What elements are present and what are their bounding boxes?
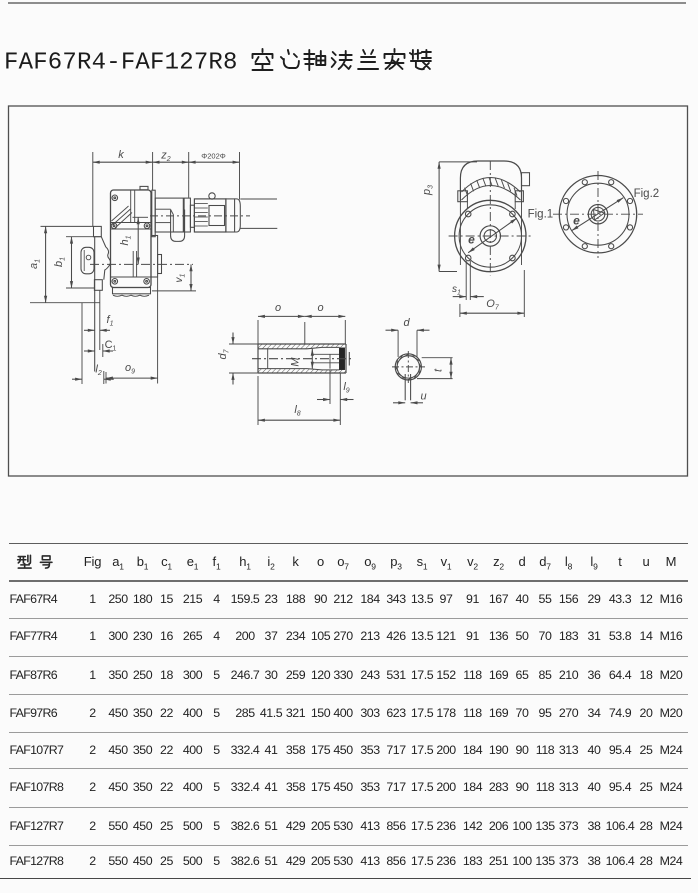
- svg-text:v1: v1: [174, 273, 187, 282]
- svg-text:l9: l9: [343, 381, 349, 395]
- svg-text:o: o: [275, 302, 281, 314]
- svg-text:s1: s1: [452, 284, 461, 297]
- svg-text:o: o: [317, 302, 323, 314]
- svg-text:f1: f1: [107, 314, 114, 328]
- svg-text:M: M: [290, 357, 302, 367]
- svg-text:p3: p3: [421, 185, 435, 196]
- svg-text:Φ202Φ: Φ202Φ: [201, 152, 225, 161]
- svg-text:O7: O7: [486, 298, 500, 312]
- svg-text:o9: o9: [125, 362, 135, 376]
- svg-text:k: k: [118, 149, 124, 161]
- svg-text:C1: C1: [105, 339, 117, 353]
- svg-text:Fig.2: Fig.2: [634, 188, 660, 200]
- svg-text:a1: a1: [28, 259, 42, 269]
- svg-text:l8: l8: [294, 404, 300, 418]
- svg-text:e: e: [573, 214, 580, 228]
- svg-text:l2: l2: [95, 364, 101, 378]
- svg-text:FAF67R4-FAF127R8: FAF67R4-FAF127R8: [4, 50, 238, 77]
- svg-text:e: e: [468, 233, 475, 247]
- svg-text:d7: d7: [217, 348, 231, 359]
- svg-text:Fig.1: Fig.1: [528, 209, 554, 221]
- svg-text:h1: h1: [119, 235, 133, 245]
- svg-text:u: u: [420, 391, 426, 403]
- svg-text:d: d: [403, 317, 410, 329]
- svg-text:b1: b1: [53, 257, 67, 267]
- svg-text:t: t: [433, 368, 445, 372]
- svg-text:z2: z2: [160, 150, 171, 164]
